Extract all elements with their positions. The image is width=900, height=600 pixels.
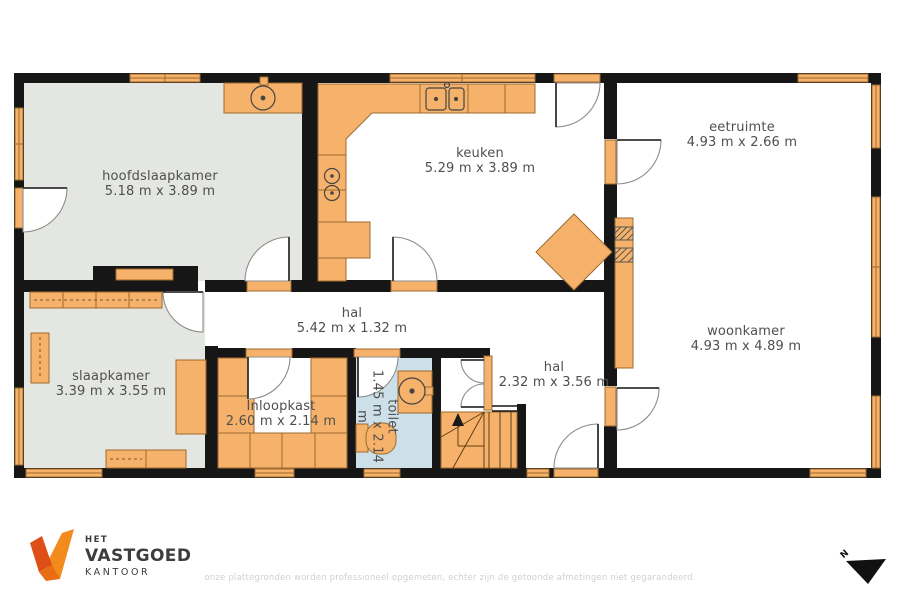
room-label-toilet: toilet 1.45 m x 2.14 m [355, 362, 400, 472]
room-dims: 1.45 m x 2.14 m [355, 362, 385, 472]
north-arrow-icon: N [833, 544, 895, 592]
room-dims: 4.93 m x 2.66 m [642, 135, 842, 150]
room-dims: 2.32 m x 3.56 m [454, 375, 654, 390]
threshold [605, 140, 616, 184]
threshold [391, 281, 437, 291]
door-arc [556, 83, 600, 127]
door-arc [393, 237, 437, 281]
compass: N [833, 544, 895, 596]
niche-insert [116, 269, 173, 280]
room-label-keuken: keuken 5.29 m x 3.89 m [380, 146, 580, 176]
room-dims: 5.42 m x 1.32 m [252, 321, 452, 336]
room-name: hoofdslaapkamer [102, 169, 218, 184]
logo-text: HET VASTGOED KANTOOR [85, 535, 191, 578]
room-label-hal-1: hal 5.42 m x 1.32 m [252, 306, 452, 336]
room-name: slaapkamer [72, 369, 150, 384]
threshold [605, 387, 616, 426]
floorplan-page: hoofdslaapkamer 5.18 m x 3.89 m keuken 5… [0, 0, 900, 600]
room-label-inloopkast: Inloopkast 2.60 m x 2.14 m [181, 399, 381, 429]
threshold [246, 349, 292, 357]
room-label-hoofdslaapkamer: hoofdslaapkamer 5.18 m x 3.89 m [60, 169, 260, 199]
logo-line-het: HET [85, 535, 191, 545]
wall-v1 [302, 83, 318, 282]
threshold [554, 74, 600, 82]
room-dims: 4.93 m x 4.89 m [646, 339, 846, 354]
threshold [354, 349, 400, 357]
door-arc [554, 424, 598, 468]
stair-railing [492, 406, 517, 411]
door-arc [248, 357, 290, 399]
room-name: eetruimte [709, 120, 775, 135]
room-name: Inloopkast [247, 399, 316, 414]
floorplan-drawing [0, 0, 900, 600]
room-name: toilet [385, 399, 400, 434]
room-dims: 5.18 m x 3.89 m [60, 184, 260, 199]
threshold [15, 188, 23, 228]
north-label: N [839, 548, 851, 560]
room-label-eetruimte: eetruimte 4.93 m x 2.66 m [642, 120, 842, 150]
tap-icon [260, 77, 268, 85]
room-label-woonkamer: woonkamer 4.93 m x 4.89 m [646, 324, 846, 354]
door-arc [617, 388, 659, 430]
threshold [247, 281, 291, 291]
room-name: hal [544, 360, 564, 375]
disclaimer-text: onze plattegronden worden professioneel … [0, 573, 900, 583]
room-name: keuken [456, 146, 504, 161]
logo-line-vastgoed: VASTGOED [85, 546, 191, 566]
room-label-slaapkamer: slaapkamer 3.39 m x 3.55 m [11, 369, 211, 399]
room-dims: 2.60 m x 2.14 m [181, 414, 381, 429]
room-name: woonkamer [707, 324, 785, 339]
room-label-hal-2: hal 2.32 m x 3.56 m [454, 360, 654, 390]
tap-icon [425, 387, 433, 395]
kitchen-counter-cell [318, 222, 370, 258]
dining-table [536, 214, 612, 290]
room-dims: 3.39 m x 3.55 m [11, 384, 211, 399]
room-dims: 5.29 m x 3.89 m [380, 161, 580, 176]
room-name: hal [342, 306, 362, 321]
threshold [554, 469, 598, 477]
